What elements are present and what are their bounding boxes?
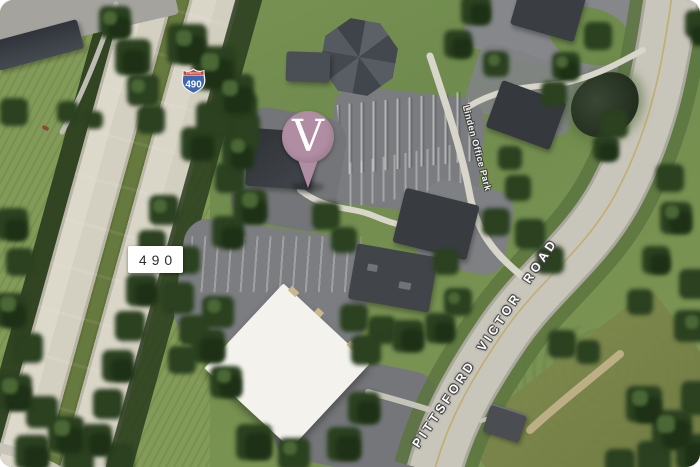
building-wing	[285, 51, 330, 83]
map-canvas[interactable]: INTERSTATE 490 490 PITTSFORD VICTOR ROAD…	[0, 0, 700, 467]
route-490-label-text: 490	[134, 252, 177, 268]
interstate-490-shield-icon: INTERSTATE 490	[180, 66, 207, 95]
shield-header-text: INTERSTATE	[186, 71, 201, 75]
parked-car-rows	[191, 236, 361, 292]
marker-letter: V	[292, 111, 324, 163]
shield-number-text: 490	[185, 80, 201, 91]
roof-vent	[367, 263, 378, 272]
marker-head[interactable]: V	[282, 111, 334, 163]
tree-canopy-layer	[0, 0, 4, 4]
roof-vent	[398, 281, 411, 290]
route-490-label: 490	[128, 246, 183, 273]
